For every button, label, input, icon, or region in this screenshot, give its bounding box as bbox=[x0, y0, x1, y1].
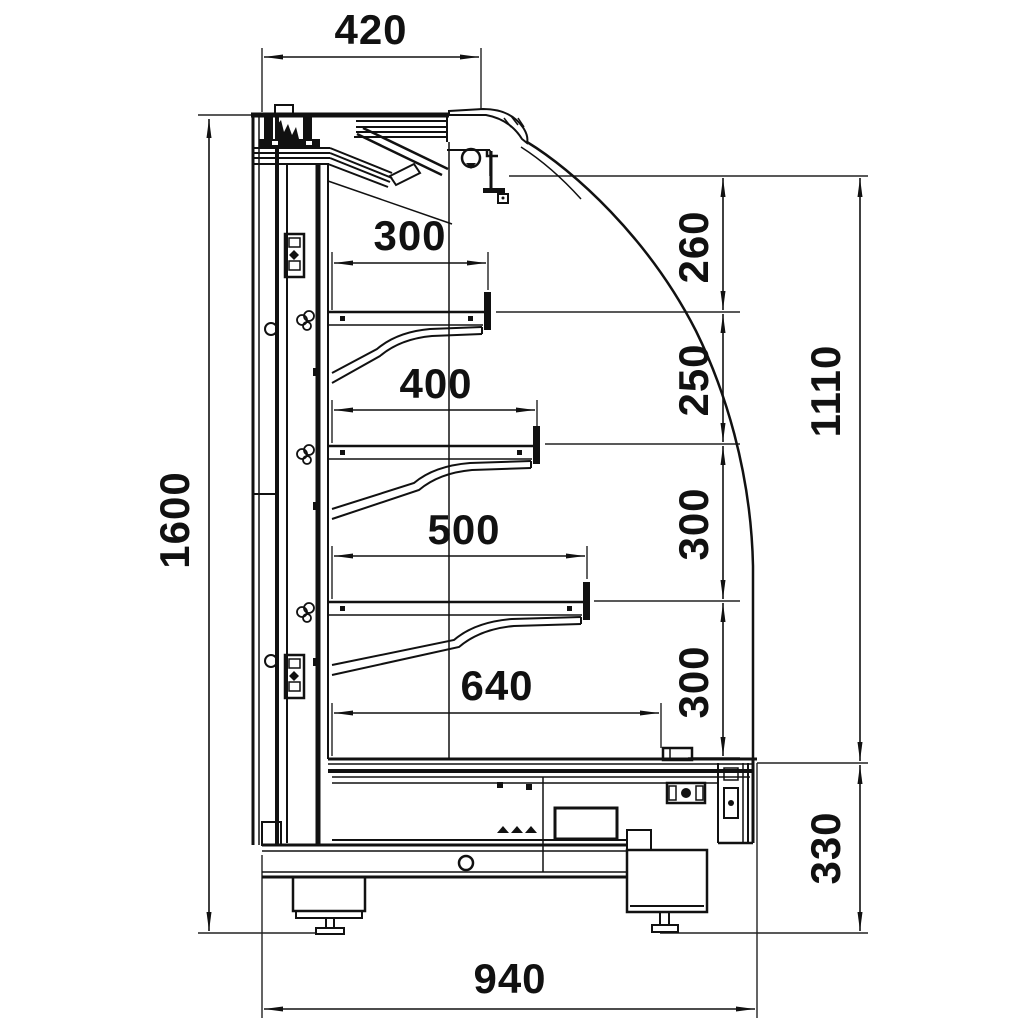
technical-drawing-canvas: 420 1600 300 400 500 640 260 250 300 300… bbox=[0, 0, 1024, 1024]
dim-label-base-height: 330 bbox=[805, 811, 847, 884]
shelf-2 bbox=[297, 426, 540, 519]
dim-label-overall-height: 1600 bbox=[154, 471, 196, 568]
dim-label-gap-top: 260 bbox=[673, 210, 715, 283]
dim-label-front-opening-height: 1110 bbox=[805, 345, 847, 438]
dim-label-top-width: 420 bbox=[334, 9, 407, 51]
dim-label-bottom-shelf-depth: 640 bbox=[460, 665, 533, 707]
dim-label-gap-shelf3-deck: 300 bbox=[673, 645, 715, 718]
canopy bbox=[251, 105, 527, 758]
dim-label-shelf1-depth: 300 bbox=[373, 215, 446, 257]
shelf-3 bbox=[297, 582, 590, 675]
dim-label-gap-shelf2-3: 300 bbox=[673, 487, 715, 560]
vent-grille bbox=[555, 808, 617, 839]
leveling-feet bbox=[293, 877, 678, 934]
dim-label-overall-depth: 940 bbox=[473, 958, 546, 1000]
dim-label-shelf2-depth: 400 bbox=[399, 363, 472, 405]
dim-label-shelf3-depth: 500 bbox=[427, 509, 500, 551]
back-wall bbox=[253, 115, 328, 845]
base-unit bbox=[262, 748, 757, 912]
glass-front bbox=[521, 142, 753, 760]
dim-label-gap-shelf1-2: 250 bbox=[673, 343, 715, 416]
dimension-lines bbox=[209, 57, 860, 1009]
